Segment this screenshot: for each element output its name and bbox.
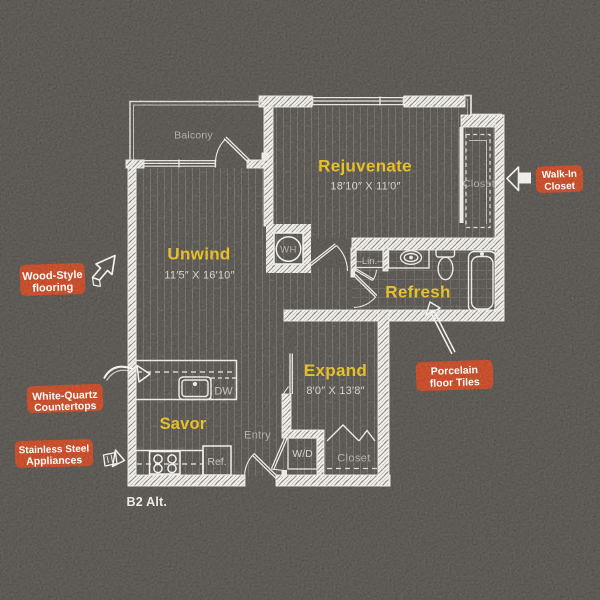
svg-text:Closet: Closet bbox=[337, 453, 371, 465]
svg-text:Ref.: Ref. bbox=[207, 456, 226, 468]
svg-text:Rejuvenate: Rejuvenate bbox=[318, 157, 412, 176]
svg-text:–Lin.–: –Lin.– bbox=[357, 256, 384, 267]
svg-text:Appliances: Appliances bbox=[26, 454, 82, 467]
svg-text:Countertops: Countertops bbox=[34, 400, 97, 414]
svg-text:Savor: Savor bbox=[160, 415, 207, 433]
svg-text:Unwind: Unwind bbox=[167, 245, 230, 264]
svg-text:Closet: Closet bbox=[544, 181, 576, 193]
svg-text:flooring: flooring bbox=[32, 281, 73, 294]
svg-text:Expand: Expand bbox=[304, 361, 367, 380]
svg-text:floor Tiles: floor Tiles bbox=[430, 376, 481, 390]
svg-text:W/D: W/D bbox=[292, 448, 313, 460]
svg-text:Walk-In: Walk-In bbox=[542, 169, 578, 181]
svg-text:18′10″ X 11′0″: 18′10″ X 11′0″ bbox=[330, 181, 400, 193]
svg-text:B2 Alt.: B2 Alt. bbox=[127, 495, 168, 509]
svg-text:8′0″ X 13′8″: 8′0″ X 13′8″ bbox=[306, 385, 364, 397]
svg-text:WH: WH bbox=[280, 245, 297, 256]
svg-text:11′5″ X 16′10″: 11′5″ X 16′10″ bbox=[164, 270, 234, 282]
svg-text:Closet: Closet bbox=[463, 178, 495, 190]
svg-text:Wood-Style: Wood-Style bbox=[22, 269, 83, 283]
svg-text:DW: DW bbox=[214, 386, 233, 398]
svg-text:Refresh: Refresh bbox=[385, 283, 450, 302]
svg-text:Entry: Entry bbox=[244, 430, 271, 442]
svg-text:Balcony: Balcony bbox=[174, 130, 213, 142]
